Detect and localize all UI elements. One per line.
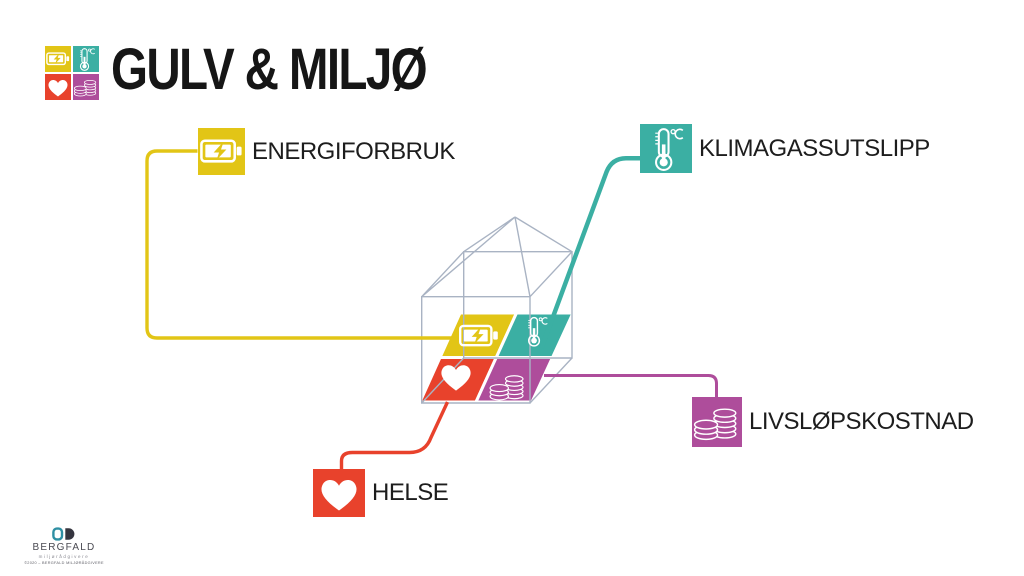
cost-icon-square (692, 397, 742, 447)
battery-icon (198, 128, 245, 175)
bergfald-logo: BERGFALD miljørådgivere ©2020 – BERGFALD… (30, 527, 98, 565)
health-icon-square (313, 469, 365, 517)
node-climate-label: KLIMAGASSUTSLIPP (699, 135, 930, 163)
coins-icon (692, 397, 742, 447)
energy-icon-square (198, 128, 245, 175)
node-climate: KLIMAGASSUTSLIPP (640, 124, 930, 173)
node-cost: LIVSLØPSKOSTNAD (692, 397, 974, 447)
climate-icon-square (640, 124, 692, 173)
connector-energy-line (147, 151, 452, 338)
node-health: HELSE (313, 469, 448, 517)
node-energy: ENERGIFORBRUK (198, 128, 455, 175)
node-energy-label: ENERGIFORBRUK (252, 138, 455, 166)
footer-company-name: BERGFALD (33, 542, 96, 553)
bergfald-mark-icon (52, 527, 76, 541)
footer-copyright: ©2020 – BERGFALD MILJØRÅDGIVERE (24, 561, 104, 565)
footer-tagline: miljørådgivere (39, 554, 90, 559)
slide: GULV & MILJØ ENERGIFORBRUK KLIM (0, 0, 1024, 576)
connector-cost-line (544, 376, 717, 399)
heart-icon (315, 469, 363, 517)
node-health-label: HELSE (372, 479, 448, 507)
connector-health-line (342, 402, 448, 470)
house-diagram (0, 0, 1024, 576)
thermometer-icon (642, 124, 691, 173)
node-cost-label: LIVSLØPSKOSTNAD (749, 408, 974, 436)
